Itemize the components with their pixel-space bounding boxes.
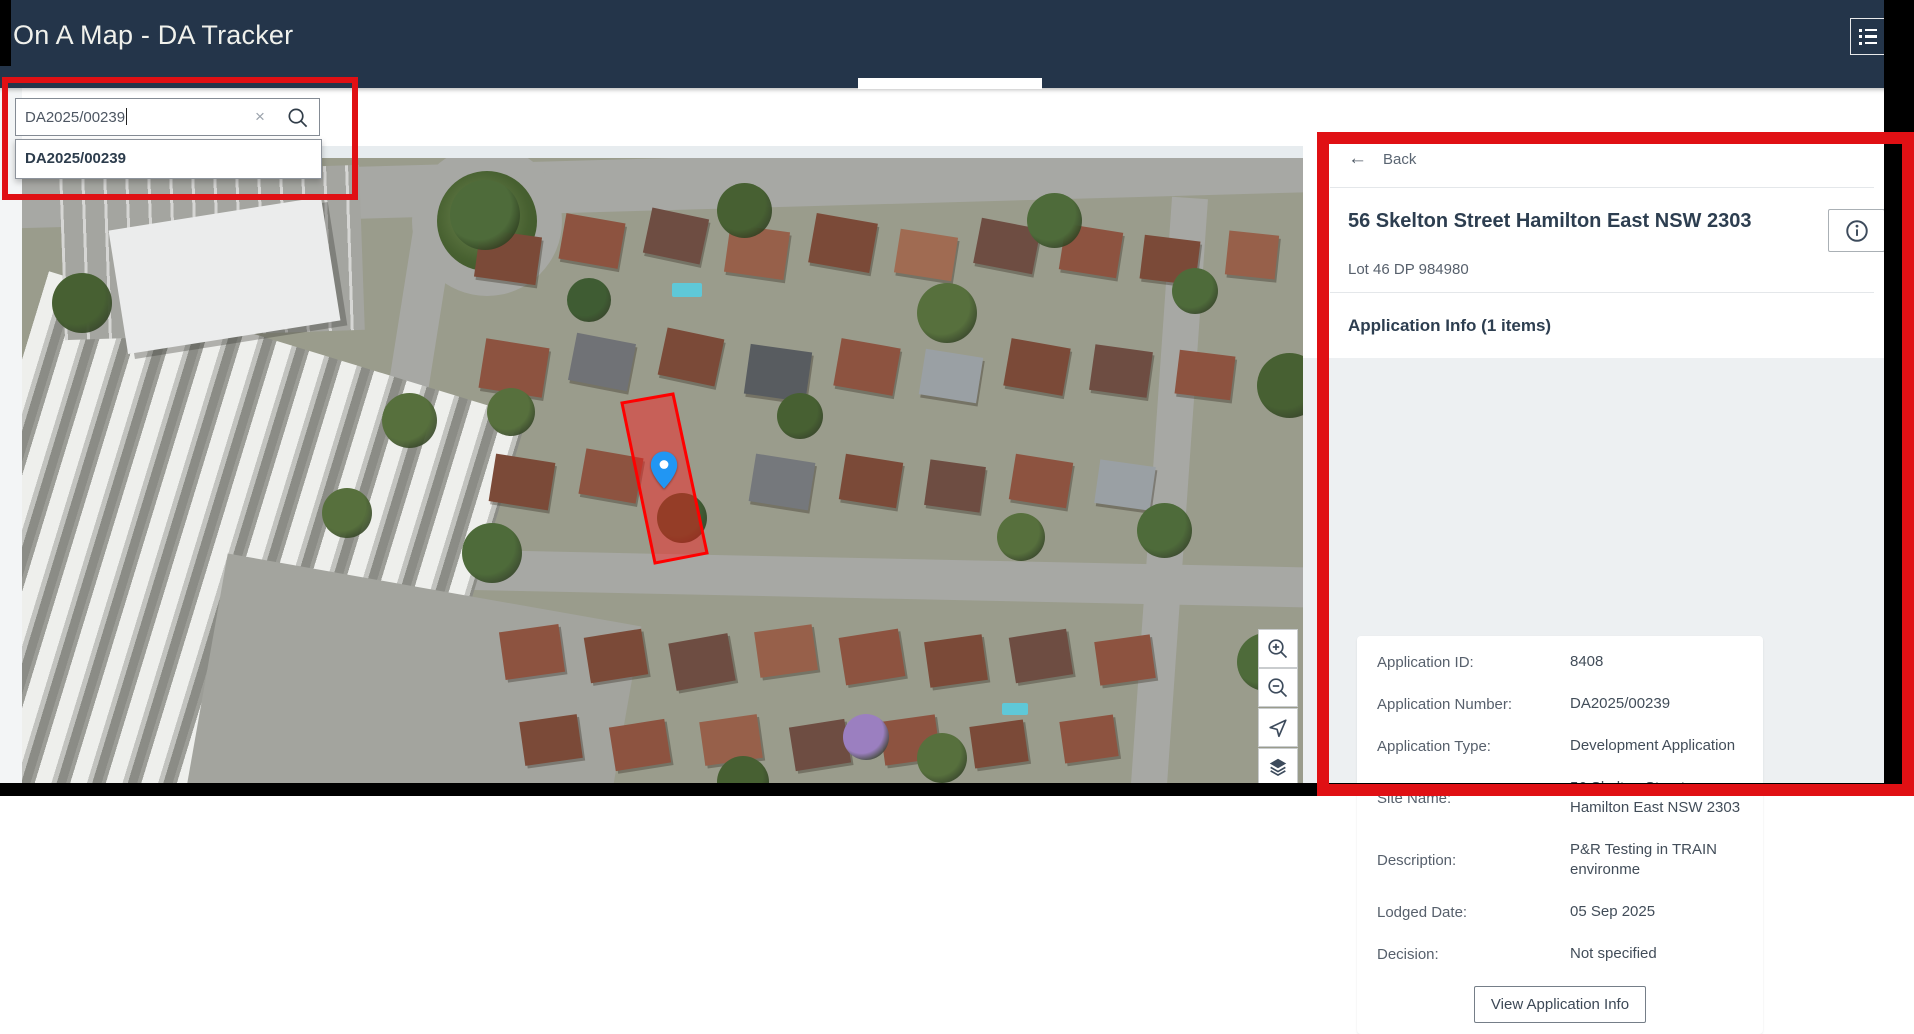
header-notch [858, 78, 1042, 89]
view-application-info-button[interactable]: View Application Info [1474, 986, 1646, 1023]
field-application-number: Application Number: DA2025/00239 [1377, 694, 1743, 714]
list-icon [1859, 29, 1877, 45]
zoom-out-icon [1266, 676, 1290, 700]
zoom-in-icon [1266, 637, 1290, 661]
search-input[interactable]: DA2025/00239 [25, 108, 245, 126]
info-circle-icon [1844, 218, 1870, 244]
zoom-out-button[interactable] [1258, 668, 1298, 707]
divider [1330, 187, 1874, 188]
zoom-in-button[interactable] [1258, 629, 1298, 668]
magnifier-icon [286, 106, 309, 129]
locate-arrow-icon [1267, 717, 1289, 739]
layers-icon [1267, 756, 1289, 778]
letterbox-bottom [0, 783, 1914, 796]
search-box[interactable]: DA2025/00239 × [15, 98, 320, 136]
field-application-type: Application Type: Development Applicatio… [1377, 736, 1743, 756]
info-button[interactable] [1828, 209, 1885, 252]
layers-button[interactable] [1258, 748, 1298, 786]
left-gutter [0, 88, 22, 783]
location-pin-icon[interactable] [649, 450, 679, 490]
field-decision: Decision: Not specified [1377, 944, 1743, 964]
suggestion-item[interactable]: DA2025/00239 [16, 140, 321, 178]
field-description: Description: P&R Testing in TRAIN enviro… [1377, 840, 1743, 880]
search-button[interactable] [275, 99, 319, 135]
app-header: On A Map - DA Tracker [0, 0, 1914, 88]
menu-list-button[interactable] [1850, 18, 1886, 55]
locate-button[interactable] [1258, 708, 1298, 747]
text-caret [126, 108, 127, 125]
clear-search-icon[interactable]: × [245, 107, 275, 127]
application-info-heading: Application Info (1 items) [1348, 316, 1551, 336]
divider [1330, 292, 1874, 293]
site-address-title: 56 Skelton Street Hamilton East NSW 2303 [1348, 210, 1778, 233]
page-title: On A Map - DA Tracker [13, 20, 293, 51]
field-application-id: Application ID: 8408 [1377, 652, 1743, 672]
back-button[interactable]: ← Back [1348, 148, 1416, 170]
search-suggestions: DA2025/00239 [15, 139, 322, 179]
map-canvas[interactable] [22, 158, 1303, 783]
lot-reference: Lot 46 DP 984980 [1348, 261, 1469, 278]
application-info-section: Application ID: 8408 Application Number:… [1303, 358, 1884, 783]
letterbox-right [1884, 0, 1914, 796]
back-arrow-icon: ← [1348, 148, 1367, 170]
application-card: Application ID: 8408 Application Number:… [1357, 636, 1763, 1034]
field-lodged-date: Lodged Date: 05 Sep 2025 [1377, 902, 1743, 922]
detail-panel: ← Back 56 Skelton Street Hamilton East N… [1303, 88, 1884, 783]
letterbox-left [0, 0, 11, 66]
